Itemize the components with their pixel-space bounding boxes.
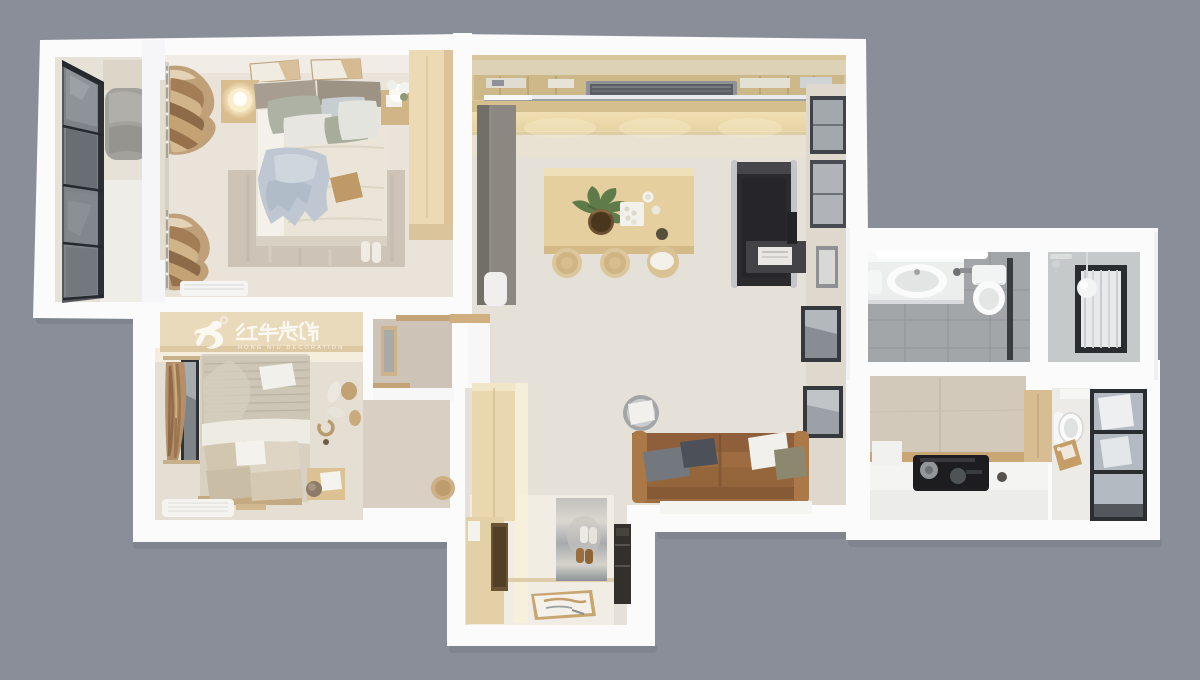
svg-text:HONG NIU DECORATION: HONG NIU DECORATION bbox=[238, 345, 344, 351]
